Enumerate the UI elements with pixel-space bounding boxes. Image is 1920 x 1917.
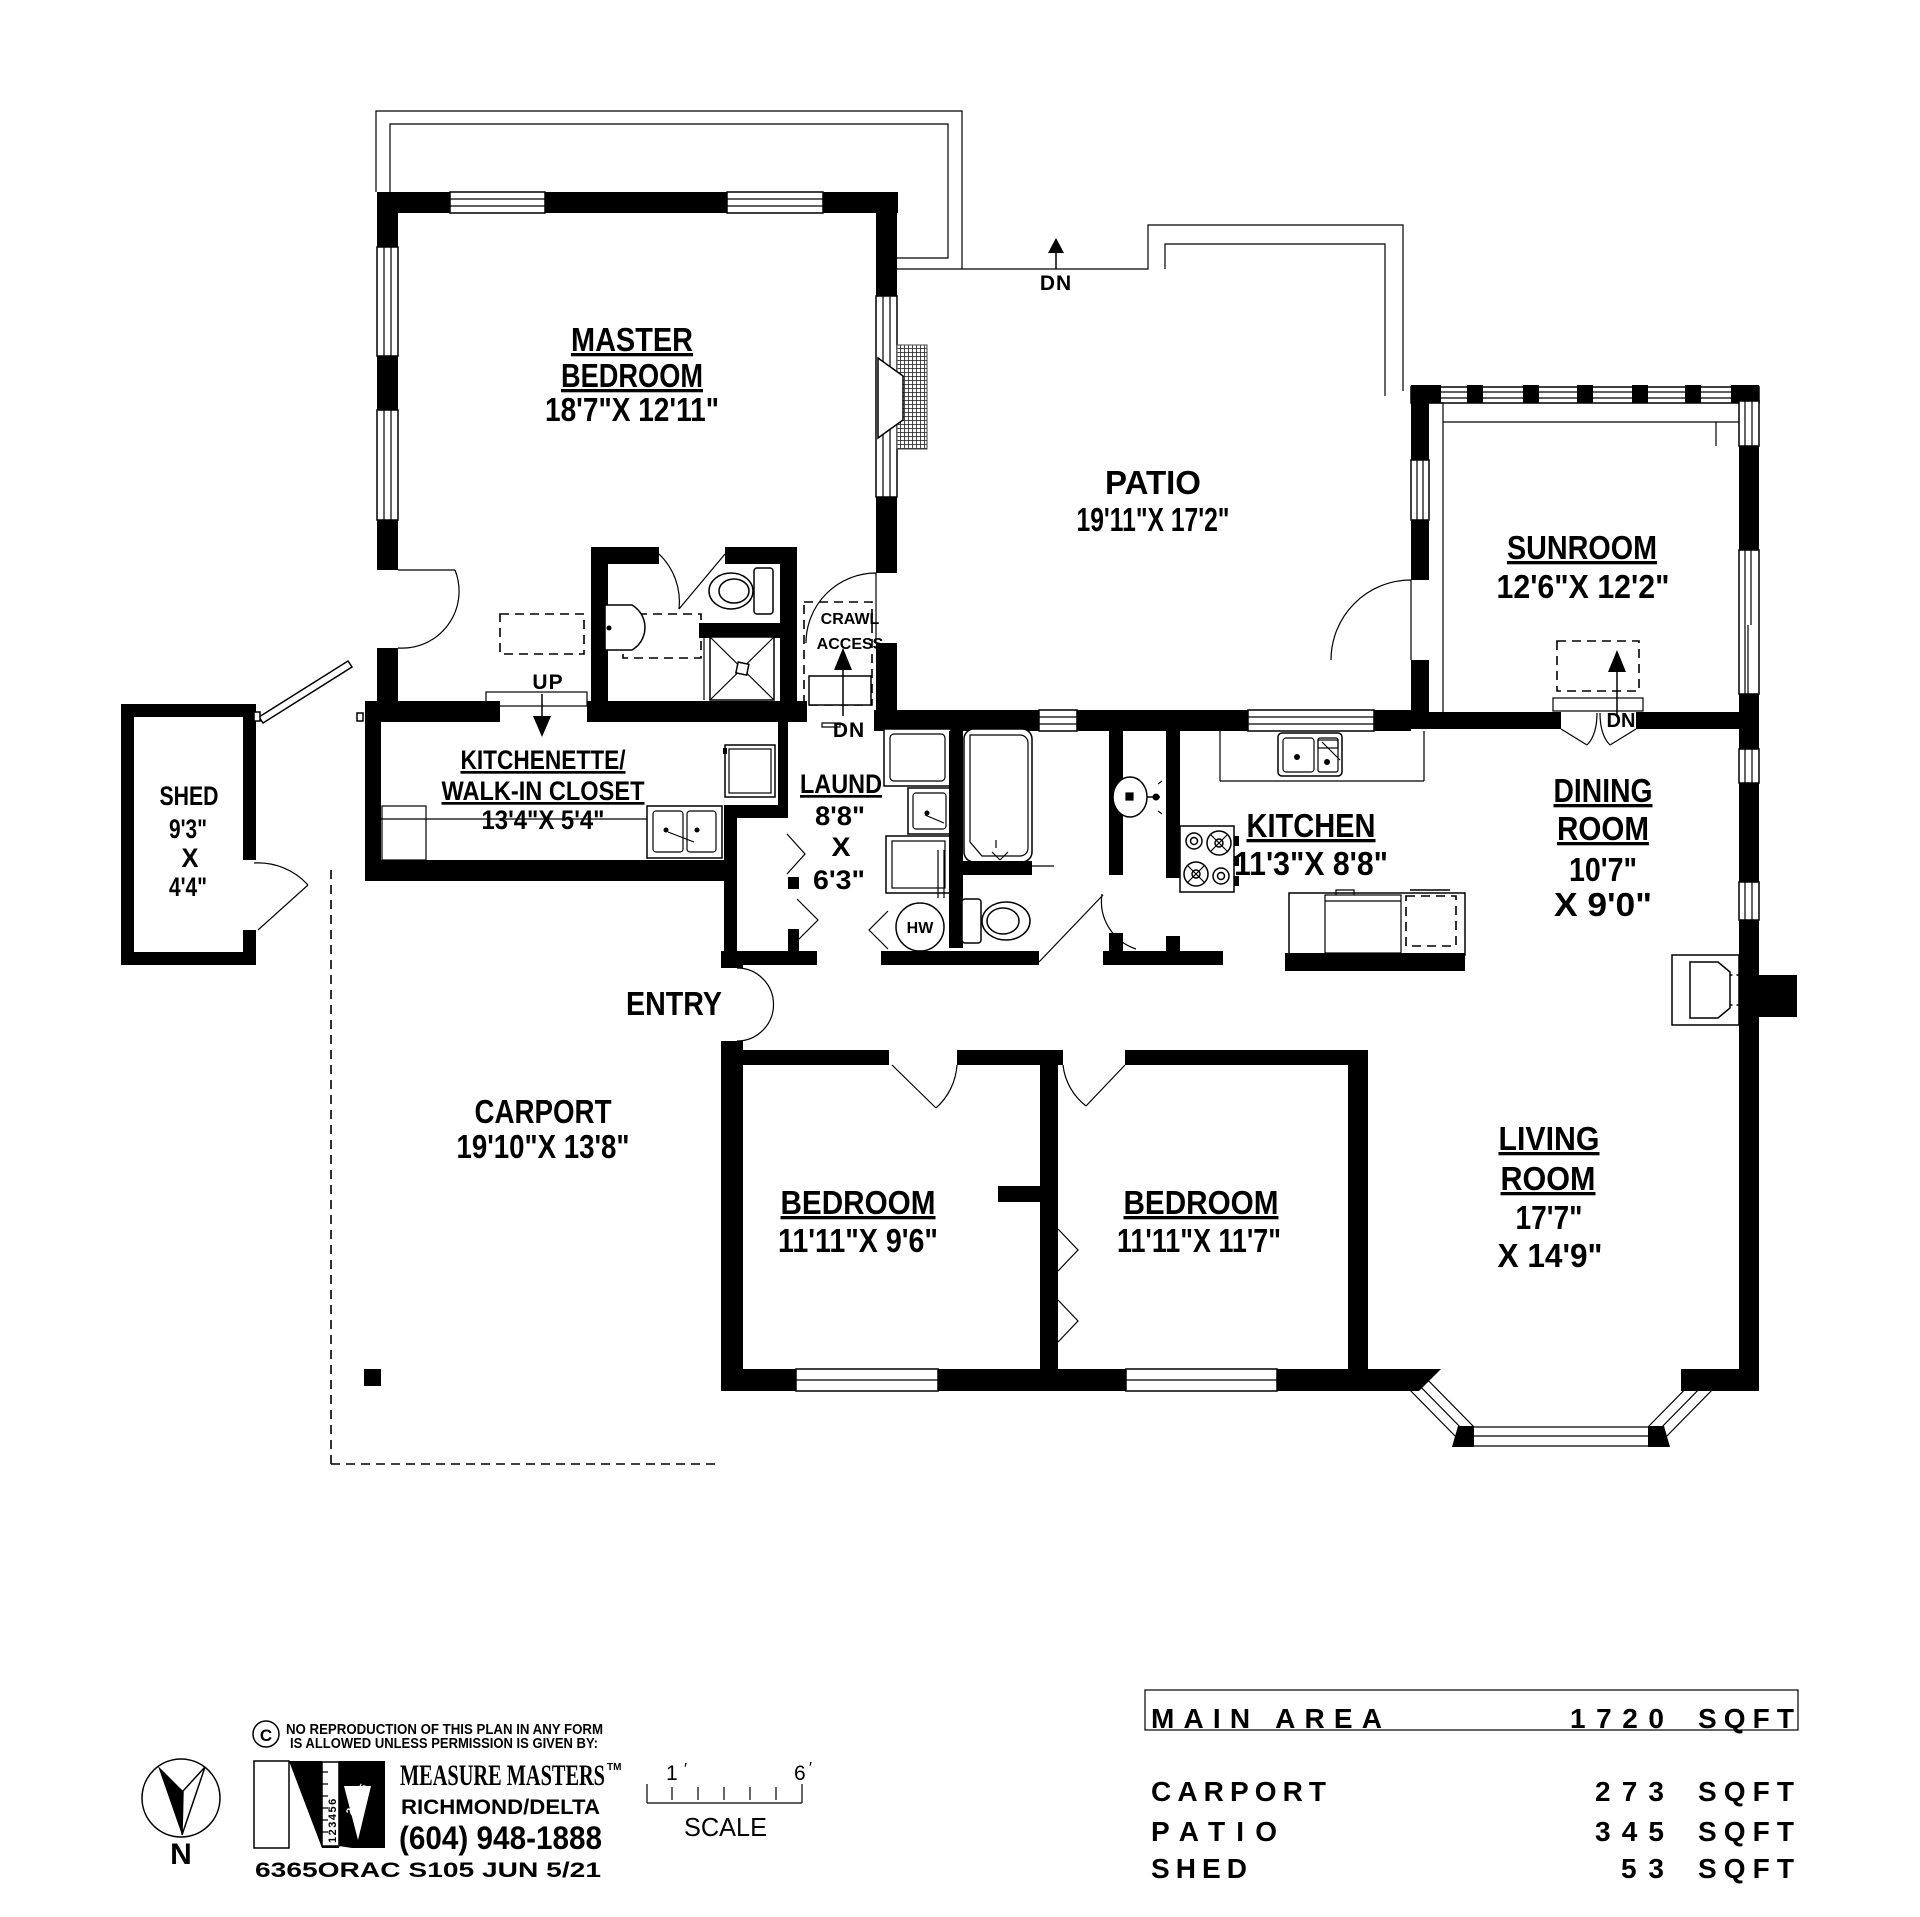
svg-text:X: X xyxy=(832,832,851,862)
svg-text:CARPORT: CARPORT xyxy=(1151,1776,1326,1807)
svg-text:13'4"X 5'4": 13'4"X 5'4" xyxy=(482,805,605,835)
svg-text:KITCHENETTE/: KITCHENETTE/ xyxy=(461,745,626,775)
svg-text:TM: TM xyxy=(607,1762,621,1773)
svg-text:ACCESS: ACCESS xyxy=(817,636,884,653)
svg-text:ENTRY: ENTRY xyxy=(626,985,722,1022)
svg-text:HW: HW xyxy=(907,920,935,937)
svg-text:X: X xyxy=(182,843,199,873)
svg-text:1: 1 xyxy=(666,1762,678,1785)
svg-text:SUNROOM: SUNROOM xyxy=(1507,529,1657,566)
svg-text:10'7": 10'7" xyxy=(1569,851,1637,888)
svg-text:8'8": 8'8" xyxy=(815,801,865,831)
svg-text:17'7": 17'7" xyxy=(1516,1199,1583,1236)
svg-text:BEDROOM: BEDROOM xyxy=(1124,1184,1279,1221)
svg-text:6365ORAC S105 JUN 5/21: 6365ORAC S105 JUN 5/21 xyxy=(255,1859,601,1882)
svg-text:WALK-IN CLOSET: WALK-IN CLOSET xyxy=(442,776,645,806)
svg-text:CARPORT: CARPORT xyxy=(475,1093,612,1130)
svg-text:19'11"X 17'2": 19'11"X 17'2" xyxy=(1077,501,1230,538)
svg-text:CRAWL: CRAWL xyxy=(821,611,880,628)
svg-text:SHED: SHED xyxy=(160,781,219,811)
svg-text:6'3": 6'3" xyxy=(813,865,865,895)
svg-text:BEDROOM: BEDROOM xyxy=(561,357,703,394)
svg-text:ROOM: ROOM xyxy=(1501,1160,1596,1197)
svg-text:DN: DN xyxy=(1607,710,1636,732)
svg-text:BEDROOM: BEDROOM xyxy=(781,1184,936,1221)
svg-text:PATIO: PATIO xyxy=(1105,464,1201,501)
svg-text:345: 345 xyxy=(1595,1816,1664,1847)
svg-text:X 14'9": X 14'9" xyxy=(1498,1237,1603,1274)
svg-text:X 9'0": X 9'0" xyxy=(1554,886,1652,923)
svg-text:273: 273 xyxy=(1595,1776,1664,1807)
svg-text:123456: 123456 xyxy=(327,1797,339,1843)
svg-text:9'3": 9'3" xyxy=(169,814,207,844)
svg-text:ROOM: ROOM xyxy=(1557,810,1649,847)
svg-text:11'3"X 8'8": 11'3"X 8'8" xyxy=(1234,845,1388,882)
svg-text:(604) 948-1888: (604) 948-1888 xyxy=(399,1820,602,1856)
svg-text:4'4": 4'4" xyxy=(169,872,207,902)
svg-text:11'11"X 9'6": 11'11"X 9'6" xyxy=(778,1222,938,1259)
svg-text:IS ALLOWED UNLESS PERMISSIO: IS ALLOWED UNLESS PERMISSION IS GIVEN BY… xyxy=(290,1736,598,1752)
svg-text:KITCHEN: KITCHEN xyxy=(1247,807,1376,844)
svg-text:′: ′ xyxy=(809,1760,812,1777)
svg-text:DN: DN xyxy=(1040,272,1072,295)
svg-text:MEASURE MASTERS: MEASURE MASTERS xyxy=(400,1759,605,1792)
svg-text:UP: UP xyxy=(532,671,563,694)
svg-text:RICHMOND/DELTA: RICHMOND/DELTA xyxy=(401,1796,600,1819)
svg-text:19'10"X 13'8": 19'10"X 13'8" xyxy=(457,1128,630,1165)
svg-text:C: C xyxy=(260,1726,272,1745)
svg-text:N: N xyxy=(170,1838,192,1871)
svg-text:DINING: DINING xyxy=(1554,772,1653,809)
svg-text:SCALE: SCALE xyxy=(684,1812,767,1842)
svg-text:11'11"X 11'7": 11'11"X 11'7" xyxy=(1117,1222,1281,1259)
svg-text:MASTER: MASTER xyxy=(571,321,693,358)
svg-text:18'7"X 12'11": 18'7"X 12'11" xyxy=(545,391,719,428)
svg-text:′: ′ xyxy=(684,1761,687,1778)
svg-text:LIVING: LIVING xyxy=(1499,1120,1600,1157)
svg-text:12'6"X 12'2": 12'6"X 12'2" xyxy=(1497,568,1670,605)
svg-text:LAUND: LAUND xyxy=(800,769,882,799)
svg-text:6: 6 xyxy=(794,1762,806,1785)
